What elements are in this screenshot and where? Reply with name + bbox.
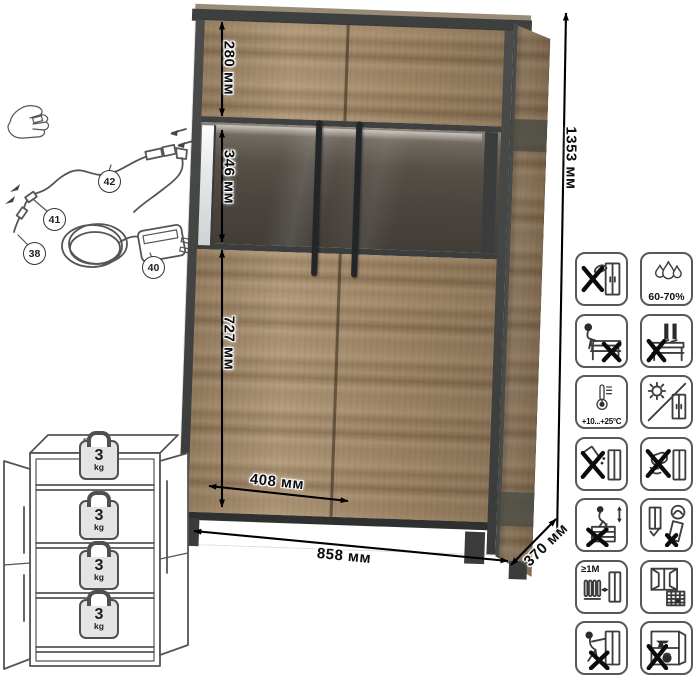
dimension-label-lower-section: 727 мм (221, 316, 238, 370)
care-icon-humidity-range: 60-70% (640, 252, 693, 306)
no-standing-icon (645, 319, 689, 363)
temperature-label: +10...+25°C (577, 417, 626, 426)
weight-badge: 3kg (79, 599, 119, 639)
no-liquids-icon (580, 442, 624, 486)
dimension-label-glass-section: 346 мм (221, 150, 238, 204)
ventilation-window-icon (645, 565, 689, 609)
spec-sheet: 42 41 38 40 (0, 0, 700, 678)
no-axe-icon (580, 257, 624, 301)
weight-badge: 3kg (79, 500, 119, 540)
part-badge-41: 41 (43, 208, 66, 231)
shelf-load-diagram: 3kg 3kg 3kg 3kg (0, 423, 198, 678)
thermometer-icon (586, 381, 618, 413)
part-badge-42: 42 (98, 170, 121, 193)
care-icon-grid: 60-70% (575, 252, 693, 675)
care-icon-no-abrasive-cleaning (640, 437, 693, 491)
water-drops-icon (650, 258, 684, 288)
no-climbing-icon (580, 503, 624, 547)
no-sitting-icon (580, 319, 624, 363)
care-icon-no-climbing (575, 498, 628, 552)
led-cable (5, 145, 176, 232)
care-icon-no-liquids (575, 437, 628, 491)
interior-mirror (198, 125, 216, 245)
no-pushing-icon (580, 626, 624, 670)
weight-badge: 3kg (79, 440, 119, 480)
care-icon-avoid-direct-sunlight (640, 375, 693, 429)
care-icon-no-sitting (575, 314, 628, 368)
heater-distance-label: ≥1М (581, 564, 599, 575)
leg-front-right (464, 531, 485, 564)
part-badge-40: 40 (142, 256, 165, 279)
upper-doors (192, 20, 513, 133)
care-icon-ventilate-room (640, 560, 693, 614)
no-heavy-items-icon (645, 626, 689, 670)
care-icon-no-heavy-items-inside (640, 621, 693, 675)
dimension-label-total-height: 1353 мм (563, 126, 580, 189)
sunlight-icon (645, 380, 689, 424)
hand-icon (8, 106, 48, 138)
part-badge-38: 38 (23, 242, 46, 265)
leg-back-right (509, 561, 528, 580)
anchor-to-wall-icon (645, 503, 689, 547)
care-icon-no-pushing-loaded (575, 621, 628, 675)
humidity-label: 60-70% (642, 291, 691, 303)
weight-badge: 3kg (79, 550, 119, 590)
care-icon-no-axe-impact (575, 252, 628, 306)
cabinet-front (178, 20, 514, 555)
care-icon-temperature-range: +10...+25°C (575, 375, 628, 429)
lower-doors (179, 249, 506, 523)
care-icon-no-standing (640, 314, 693, 368)
care-icon-anchor-to-wall (640, 498, 693, 552)
care-icon-keep-distance-from-heater: ≥1М (575, 560, 628, 614)
glass-frame-post (481, 132, 498, 253)
no-abrasive-icon (645, 442, 689, 486)
dimension-label-top-section: 280 мм (221, 41, 238, 95)
